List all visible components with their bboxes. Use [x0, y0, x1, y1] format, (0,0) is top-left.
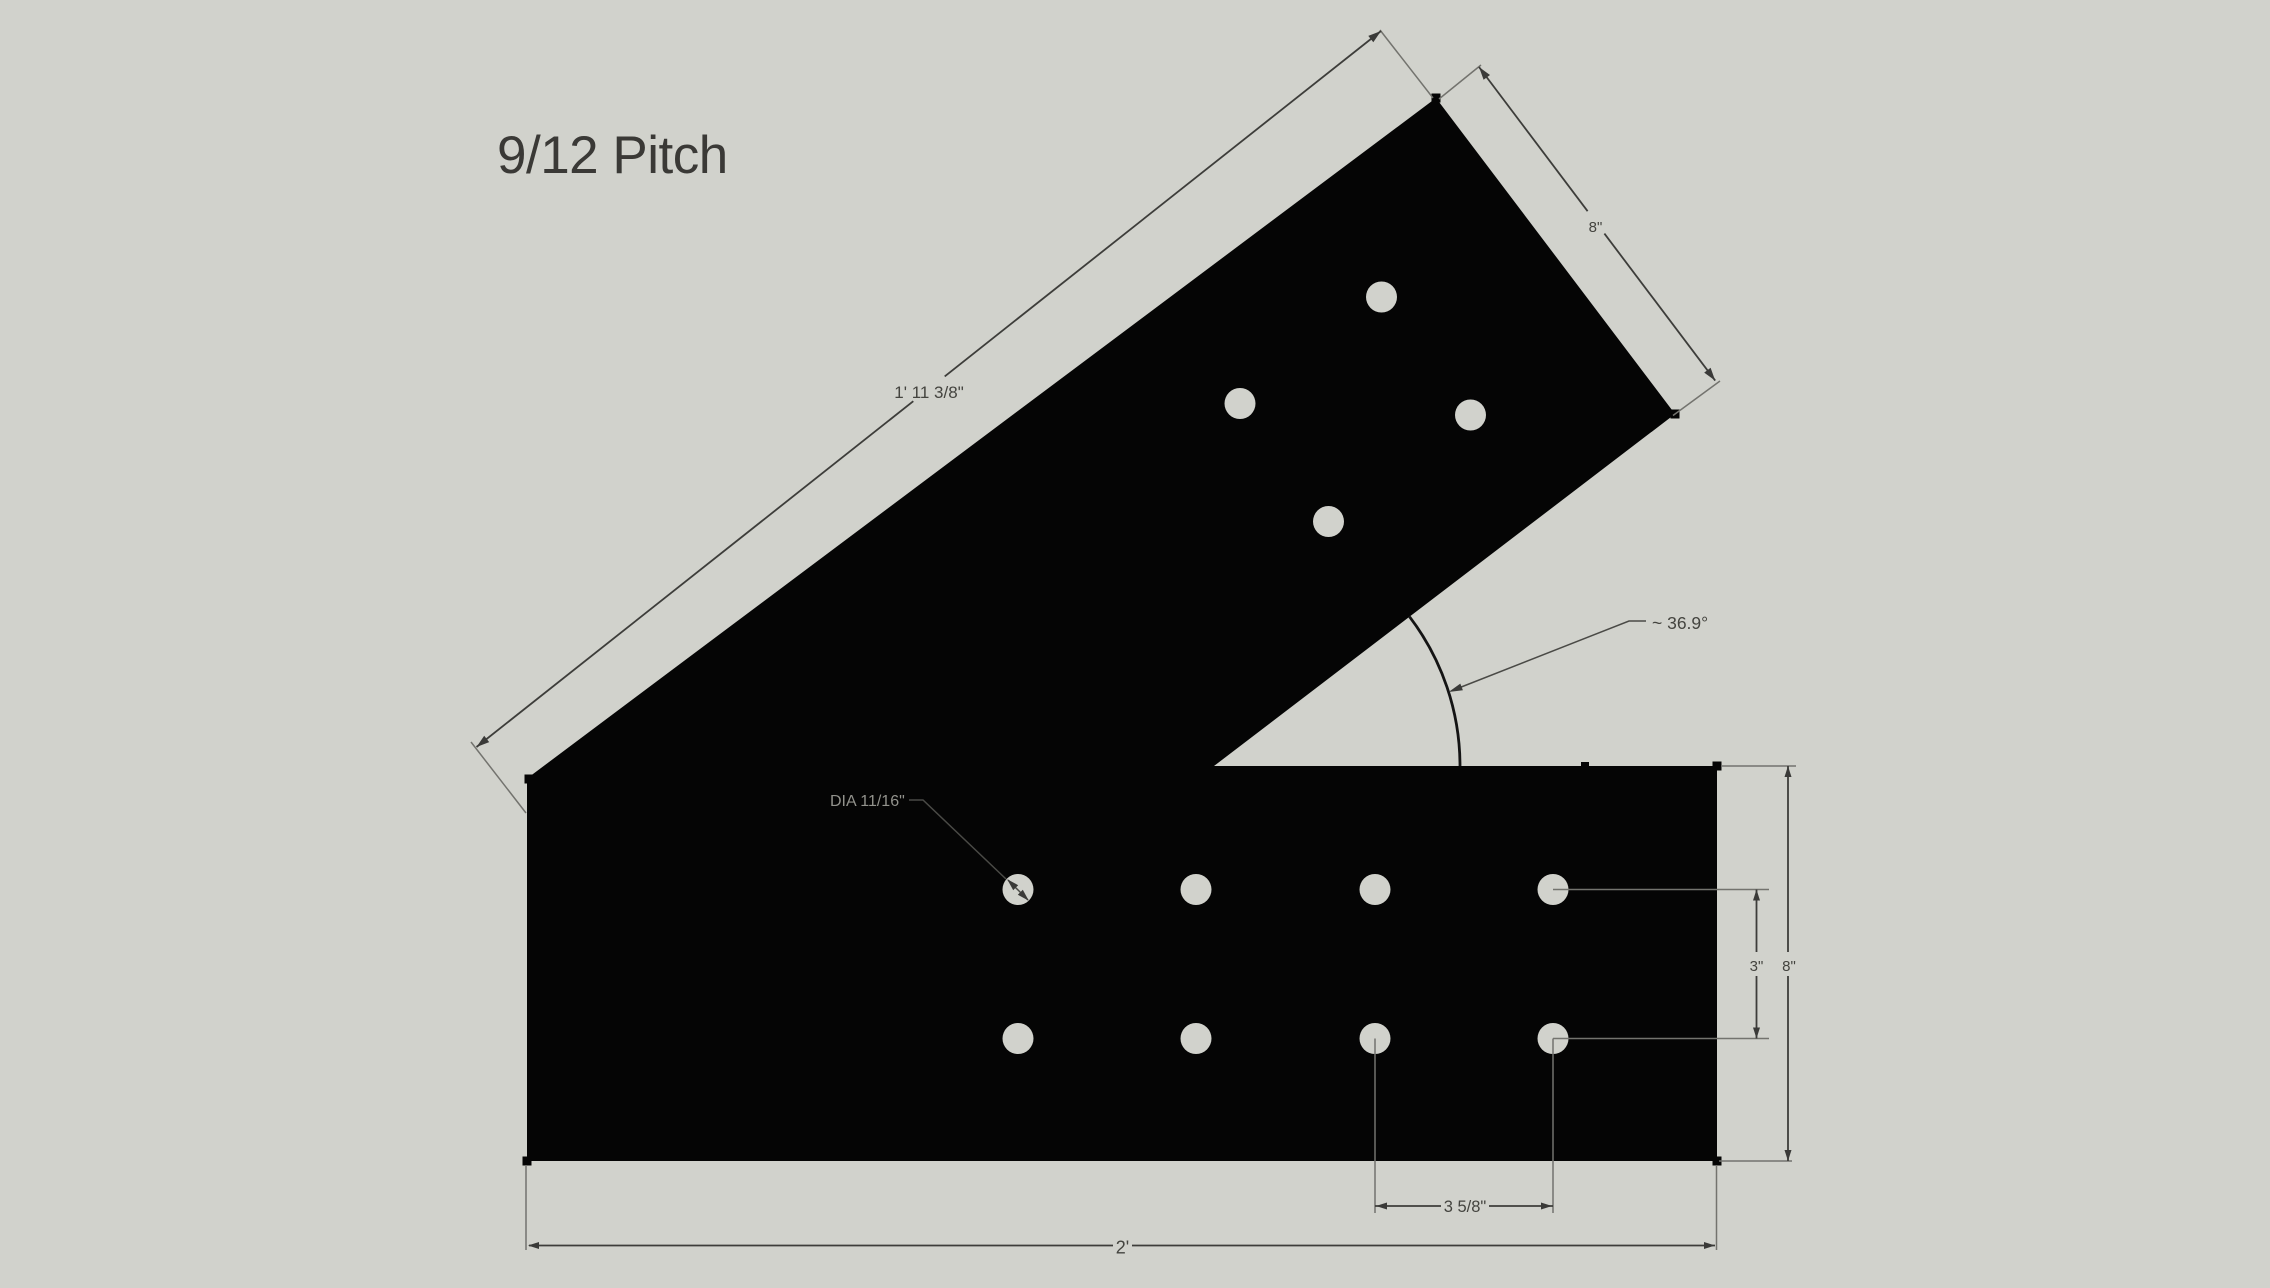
svg-text:1' 11 3/8": 1' 11 3/8": [894, 383, 963, 402]
svg-text:2': 2': [1116, 1238, 1129, 1258]
svg-text:DIA 11/16": DIA 11/16": [830, 793, 905, 810]
svg-text:3 5/8": 3 5/8": [1444, 1198, 1487, 1216]
svg-text:8": 8": [1589, 219, 1603, 236]
svg-text:~ 36.9°: ~ 36.9°: [1652, 613, 1708, 633]
svg-text:8": 8": [1782, 958, 1796, 975]
svg-text:9/12 Pitch: 9/12 Pitch: [497, 126, 728, 185]
svg-text:3": 3": [1750, 958, 1764, 975]
